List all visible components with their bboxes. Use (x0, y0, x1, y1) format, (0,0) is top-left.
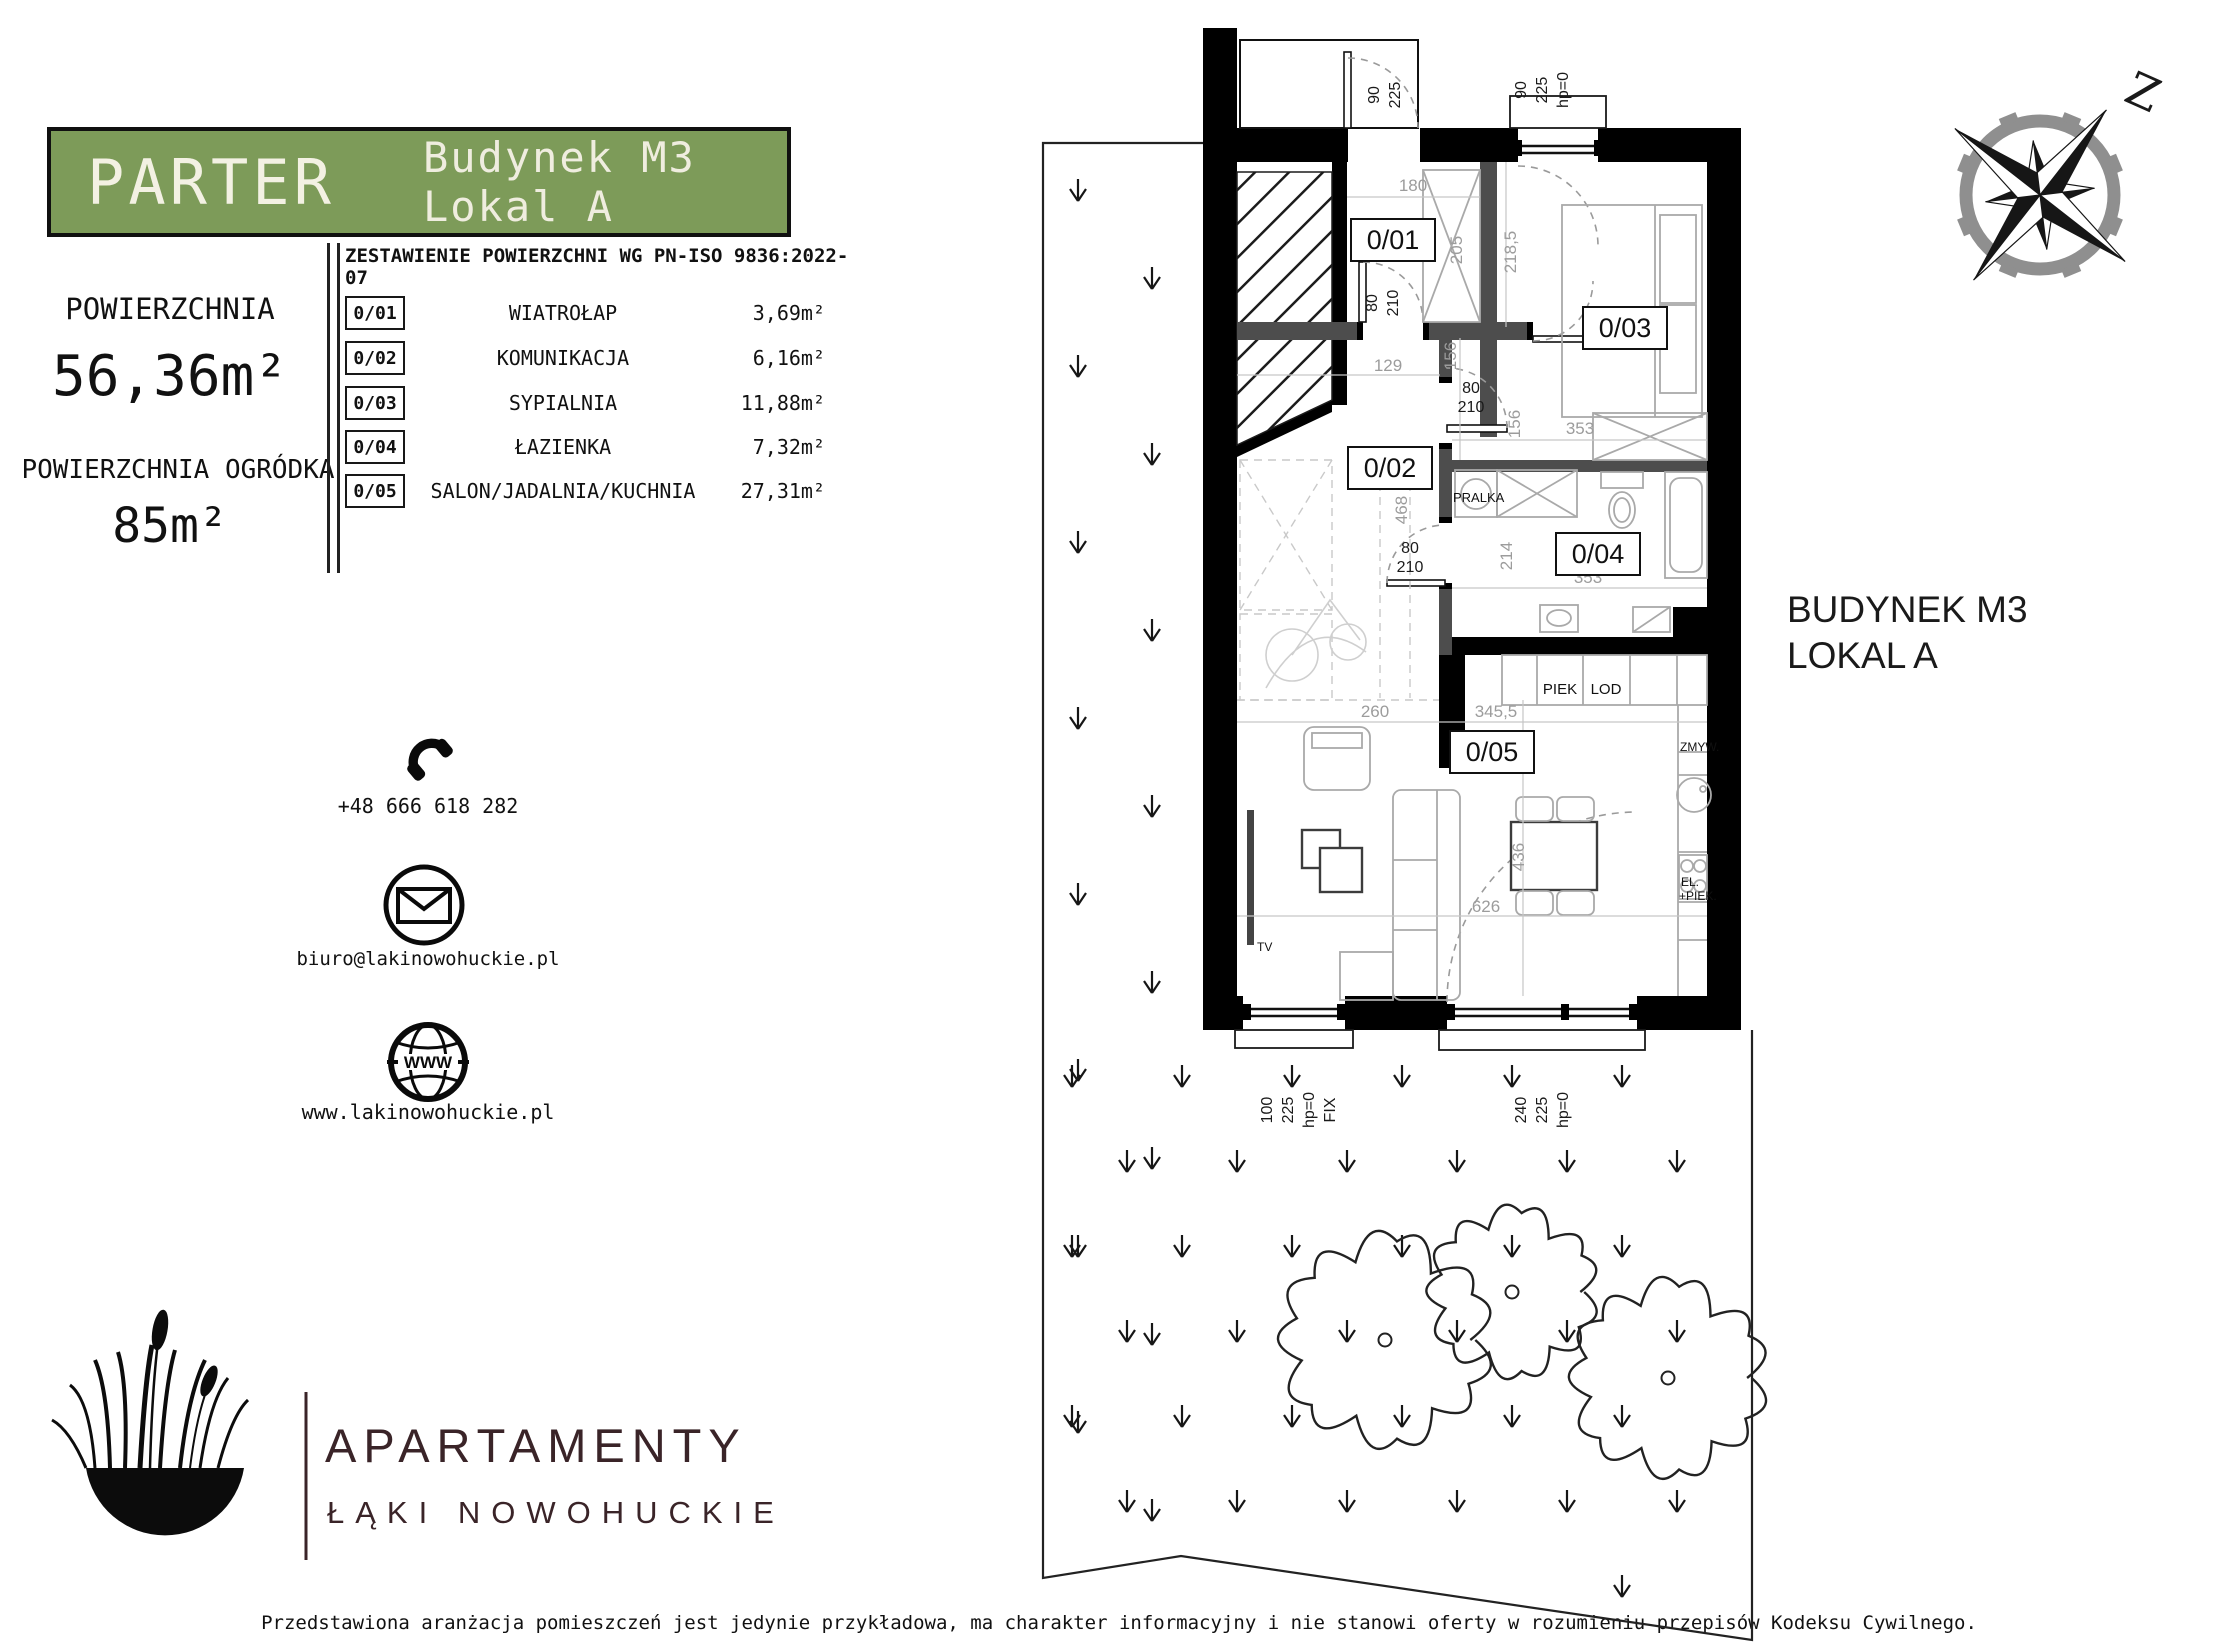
corridor-door-swing (1447, 368, 1507, 428)
room-label-0-03: 0/03 (1583, 307, 1667, 349)
svg-text:0/04: 0/04 (1572, 539, 1625, 569)
garden-area (1043, 143, 1766, 1640)
bedroom-wardrobe (1593, 413, 1707, 460)
svg-text:0/03: 0/03 (1599, 313, 1652, 343)
room-label-0-01: 0/01 (1351, 219, 1435, 261)
floorplan-sheet: PARTER Budynek M3 Lokal A POWIERZCHNIA 5… (0, 0, 2238, 1652)
bedroom-window (1510, 96, 1606, 246)
sofa (1340, 790, 1460, 1000)
entrance-door-leaf (1344, 52, 1351, 128)
svg-text:129: 129 (1374, 356, 1402, 375)
logo-grass-icon (52, 1309, 248, 1535)
room-label-0-02: 0/02 (1348, 447, 1432, 489)
compass-rose: Z (1945, 61, 2169, 290)
corridor-door-leaf (1447, 425, 1507, 432)
svg-text:156: 156 (1441, 342, 1460, 370)
svg-text:0/05: 0/05 (1466, 737, 1519, 767)
svg-text:90: 90 (1366, 86, 1383, 104)
svg-text:225: 225 (1534, 77, 1551, 104)
svg-text:80: 80 (1401, 540, 1419, 557)
coffee-table (1320, 848, 1362, 892)
svg-text:225: 225 (1280, 1097, 1297, 1124)
room-label-0-04: 0/04 (1556, 533, 1640, 575)
logo-line2: ŁĄKI NOWOHUCKIE (327, 1495, 785, 1530)
svg-text:ZMYW.: ZMYW. (1680, 740, 1719, 754)
building-label: BUDYNEK M3 LOKAL A (1787, 589, 2028, 676)
svg-text:hp=0: hp=0 (1301, 1092, 1318, 1128)
building-walls (1203, 28, 1741, 1030)
floor-plan-canvas: 180 129 205 218,5 353 156 156 468 214 35… (0, 0, 2238, 1652)
svg-text:FIX: FIX (1322, 1097, 1339, 1122)
svg-text:210: 210 (1458, 399, 1485, 416)
svg-text:80: 80 (1462, 380, 1480, 397)
shower-tray (1633, 607, 1670, 632)
svg-text:345,5: 345,5 (1475, 702, 1518, 721)
brand-logo: APARTAMENTY ŁĄKI NOWOHUCKIE (52, 1309, 785, 1560)
svg-text:hp=0: hp=0 (1555, 1092, 1572, 1128)
svg-text:180: 180 (1399, 176, 1427, 195)
svg-text:LOKAL A: LOKAL A (1787, 635, 1938, 676)
svg-text:100: 100 (1259, 1097, 1276, 1124)
svg-text:0/02: 0/02 (1364, 453, 1417, 483)
bathroom-door-leaf (1387, 580, 1445, 586)
kitchen-sink (1677, 778, 1711, 812)
svg-text:210: 210 (1385, 290, 1402, 317)
svg-text:225: 225 (1387, 82, 1404, 109)
svg-text:hp=0: hp=0 (1555, 72, 1572, 108)
svg-text:LOD: LOD (1591, 681, 1622, 698)
hatched-adjacent-area (1237, 172, 1332, 445)
hall-door-leaf (1359, 262, 1366, 322)
washbasin (1540, 605, 1578, 632)
svg-text:468: 468 (1392, 496, 1411, 524)
compass-north-letter: Z (2118, 61, 2169, 123)
svg-text:240: 240 (1513, 1097, 1530, 1124)
svg-text:218,5: 218,5 (1501, 231, 1520, 274)
garden-trees (1278, 1205, 1766, 1479)
svg-text:156: 156 (1505, 410, 1524, 438)
svg-text:0/01: 0/01 (1367, 225, 1420, 255)
svg-text:EL.: EL. (1681, 875, 1699, 889)
logo-line1: APARTAMENTY (325, 1419, 747, 1472)
stroller-sketch (1266, 600, 1366, 688)
svg-text:90: 90 (1513, 81, 1530, 99)
room-label-0-05: 0/05 (1450, 731, 1534, 773)
svg-text:436: 436 (1509, 843, 1528, 871)
svg-text:80: 80 (1364, 294, 1381, 312)
svg-text:353: 353 (1566, 419, 1594, 438)
living-fix-window (1235, 1004, 1353, 1048)
svg-text:PRALKA: PRALKA (1453, 490, 1505, 505)
svg-text:+PIEK.: +PIEK. (1679, 889, 1717, 903)
bathtub (1665, 472, 1707, 578)
toilet (1601, 472, 1643, 528)
svg-text:210: 210 (1397, 559, 1424, 576)
svg-text:626: 626 (1472, 897, 1500, 916)
svg-text:225: 225 (1534, 1097, 1551, 1124)
svg-text:BUDYNEK M3: BUDYNEK M3 (1787, 589, 2028, 630)
armchair (1304, 727, 1370, 790)
svg-text:205: 205 (1447, 236, 1466, 264)
bathroom-cabinet (1497, 470, 1577, 517)
svg-text:PIEK: PIEK (1543, 681, 1577, 698)
svg-text:214: 214 (1497, 542, 1516, 570)
svg-text:TV: TV (1257, 940, 1272, 954)
svg-text:260: 260 (1361, 702, 1389, 721)
tv (1247, 810, 1254, 945)
